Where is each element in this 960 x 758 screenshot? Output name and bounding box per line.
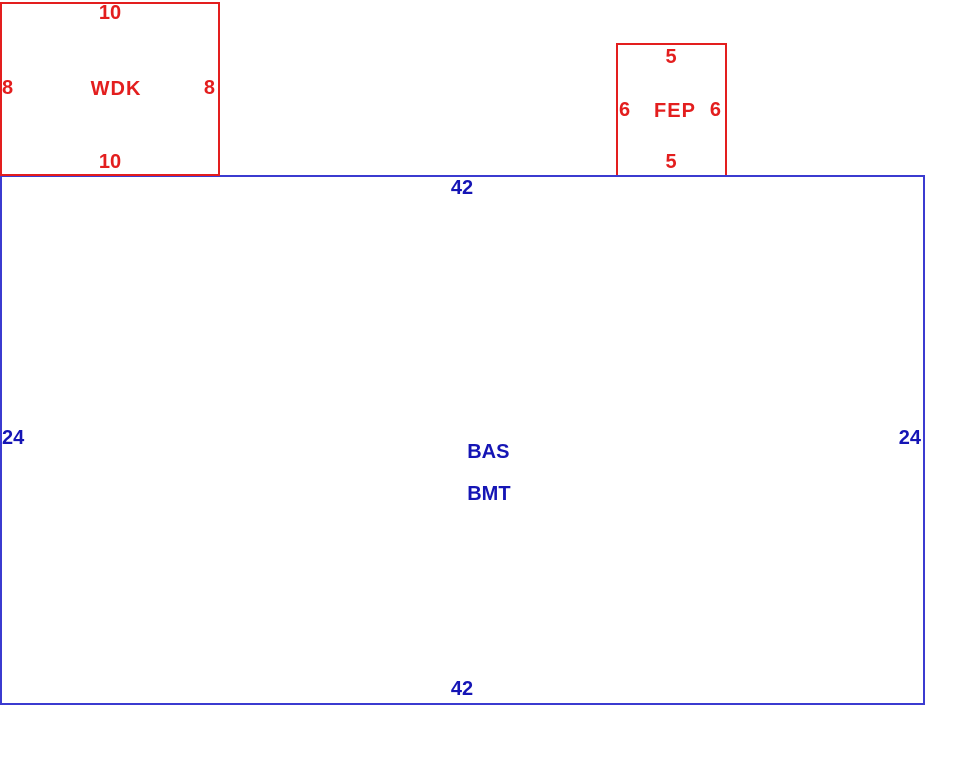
bas-dimension-top: 42: [451, 178, 473, 199]
fep-dimension-bottom: 5: [665, 152, 676, 173]
floorplan-sketch-canvas: 10 10 8 8 WDK 5 5 6 6 FEP 42 42 24 24 BA…: [0, 0, 960, 758]
bas-area-label: BAS BMT: [445, 421, 511, 526]
wdk-dimension-right: 8: [204, 78, 215, 99]
bas-area-label-line2: BMT: [467, 483, 510, 505]
bas-dimension-left: 24: [2, 428, 24, 449]
wdk-dimension-top: 10: [99, 3, 121, 24]
fep-dimension-top: 5: [665, 47, 676, 68]
wdk-area-label: WDK: [91, 79, 142, 100]
wdk-dimension-left: 8: [2, 78, 13, 99]
bas-dimension-bottom: 42: [451, 679, 473, 700]
wdk-dimension-bottom: 10: [99, 152, 121, 173]
fep-area-label: FEP: [654, 101, 696, 122]
bas-area-label-line1: BAS: [467, 441, 509, 463]
fep-dimension-left: 6: [619, 100, 630, 121]
bas-dimension-right: 24: [899, 428, 921, 449]
fep-dimension-right: 6: [710, 100, 721, 121]
